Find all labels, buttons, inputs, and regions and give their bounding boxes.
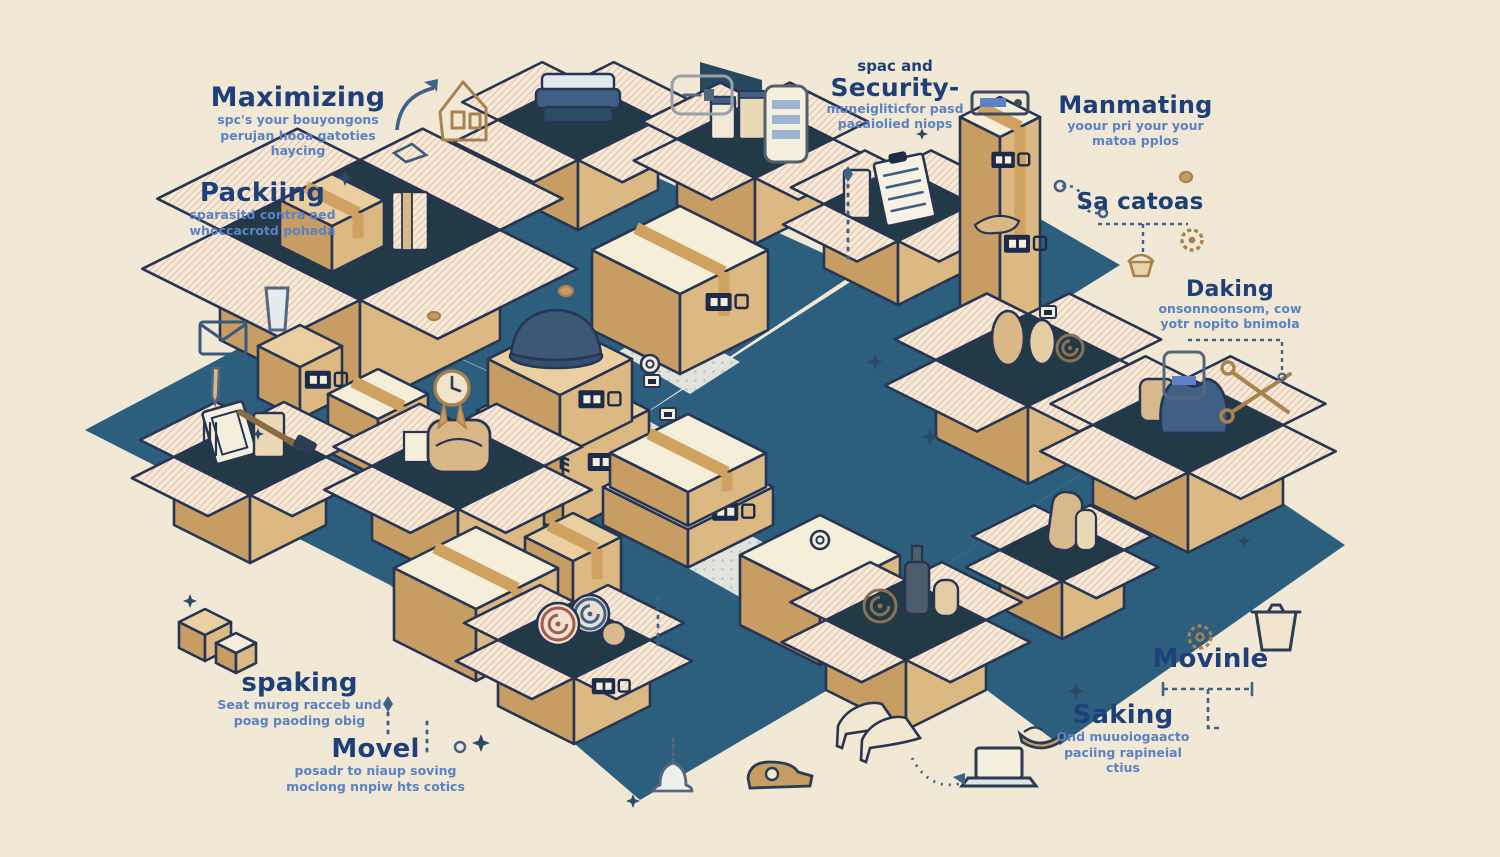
label-movel: Movel posadr to niaup soving moclong nnp… <box>258 736 493 794</box>
closed-box <box>960 97 1046 332</box>
heading: Daking <box>1125 278 1335 301</box>
cupcake-icon <box>1128 255 1154 276</box>
label-saking: Saking Ond muuoiogaacto paciing rapineia… <box>1028 702 1218 775</box>
label-sa-catoas: Sa catoas <box>1055 190 1225 214</box>
heading: Movinle <box>1128 646 1293 673</box>
gear-icon <box>1182 230 1202 250</box>
heading: Packiing <box>150 180 375 207</box>
moving-boxes-illustration: PIPE Maximizing spc's your bouyongons pe… <box>0 0 1500 857</box>
heading: Security- <box>795 75 995 101</box>
label-packing: Packiing sparasitd contra aed whoccacrot… <box>150 180 375 238</box>
heading: Maximizing <box>178 84 418 112</box>
label-maximizing: Maximizing spc's your bouyongons perujan… <box>178 84 418 158</box>
label-movinle: Movinle <box>1128 646 1293 673</box>
heading: Saking <box>1028 702 1218 729</box>
pen-icon <box>212 368 219 404</box>
label-spaking: spaking Seat murog racceb und poag paodi… <box>192 670 407 728</box>
laptop-icon <box>962 748 1036 786</box>
heading: Manmating <box>1038 93 1233 118</box>
heading: spaking <box>192 670 407 697</box>
closed-box <box>216 633 256 673</box>
label-security: spac and Security- muneigliticfor pasd p… <box>795 58 995 131</box>
heading: Movel <box>258 736 493 763</box>
heading: Sa catoas <box>1055 190 1225 214</box>
glass-icon <box>266 288 288 330</box>
tape-dispenser-icon <box>748 762 812 788</box>
label-daking: Daking onsonnoonsom, cow yotr nopito bni… <box>1125 278 1335 332</box>
clothes-items <box>536 74 620 122</box>
label-manmating: Manmating yoour pri your your matoa pplo… <box>1038 93 1233 149</box>
